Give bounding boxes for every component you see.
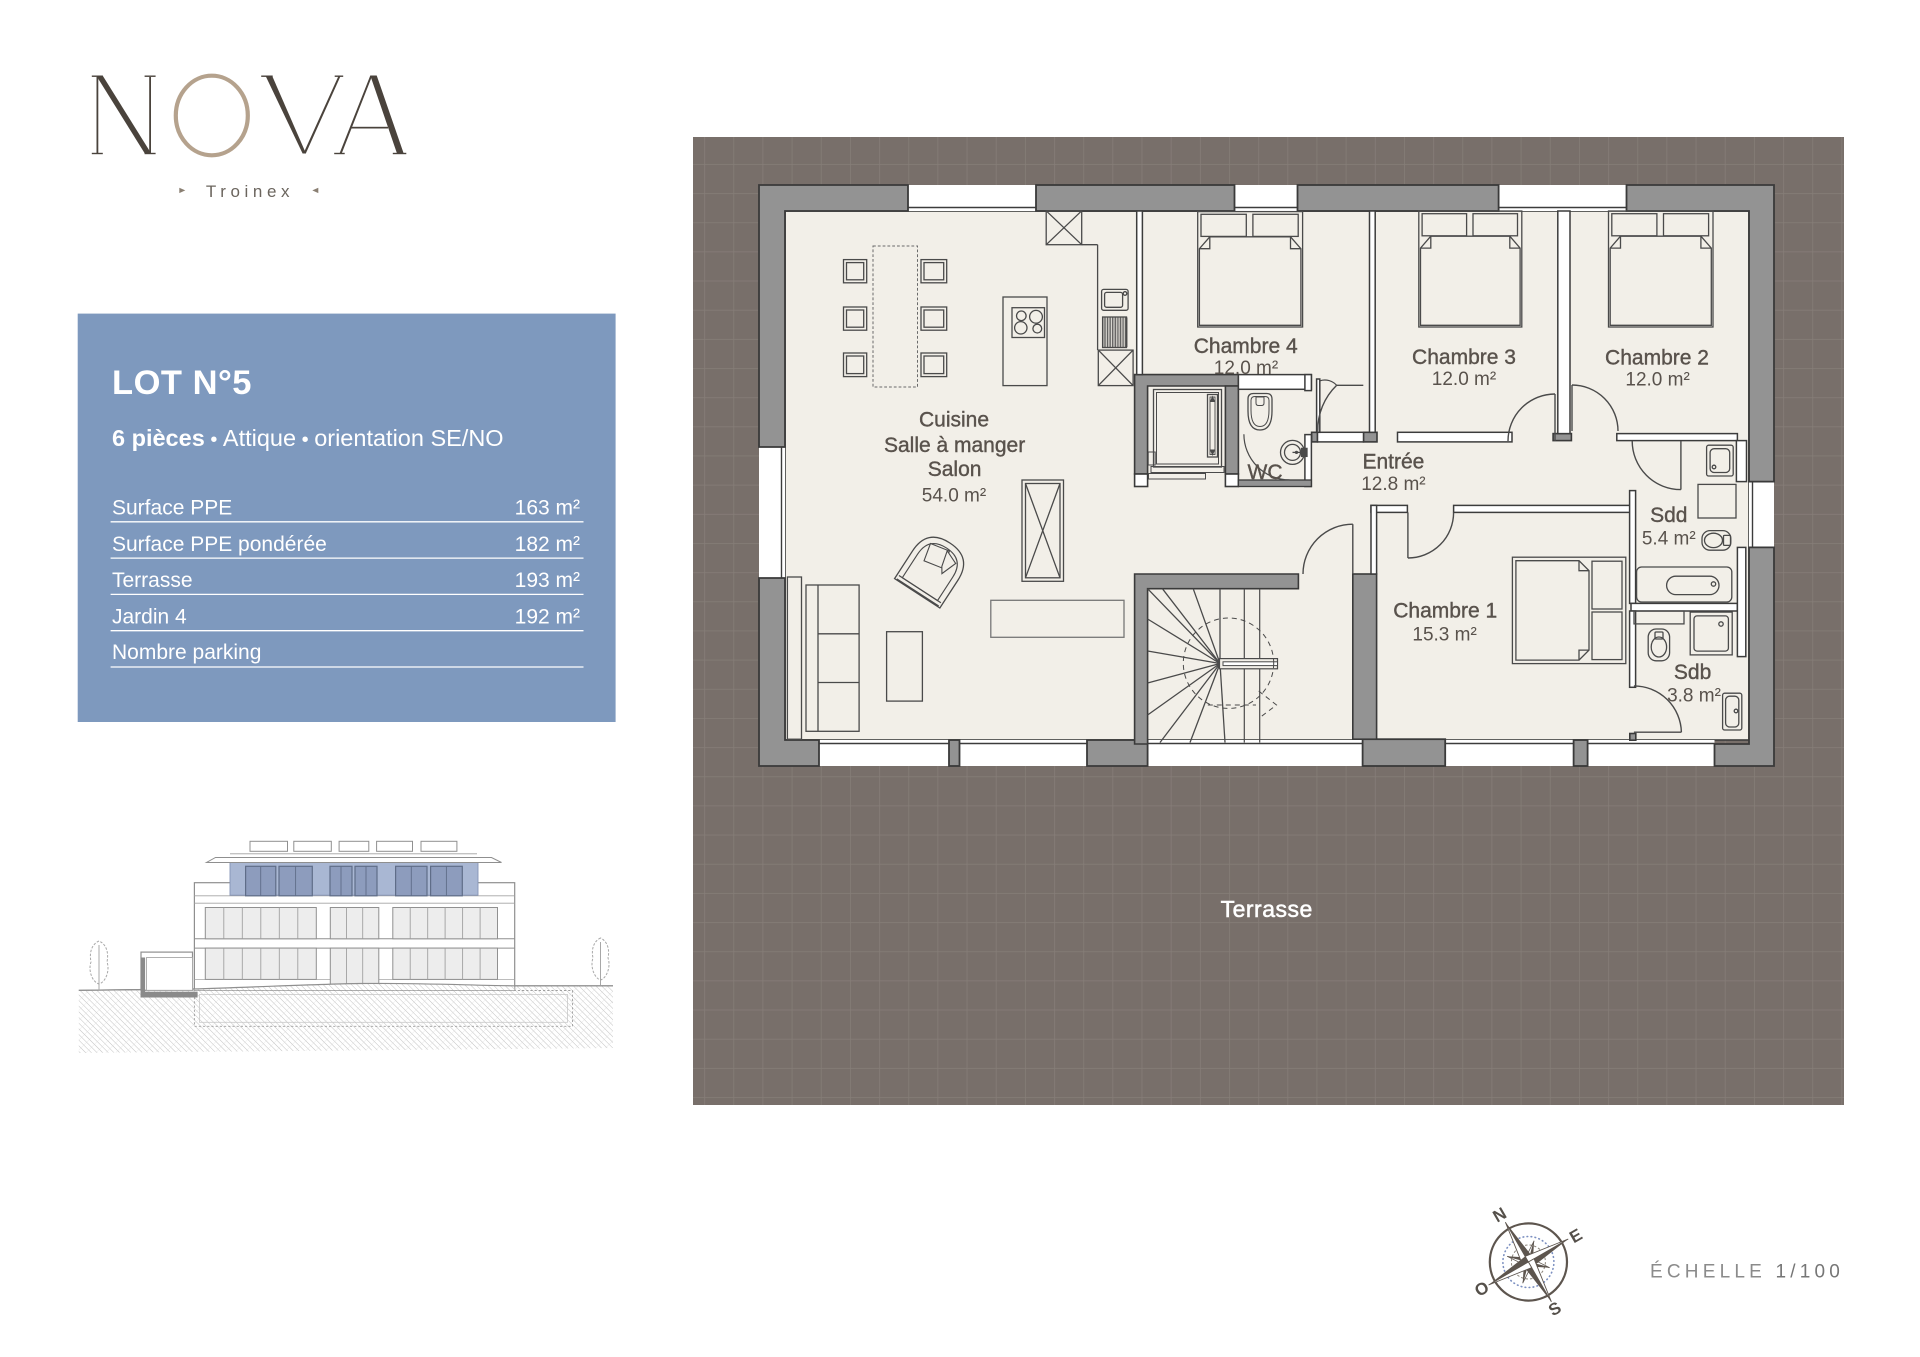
- svg-text:12.0 m²: 12.0 m²: [1214, 358, 1278, 379]
- svg-text:Chambre 2: Chambre 2: [1605, 346, 1709, 369]
- svg-text:3.8 m²: 3.8 m²: [1667, 685, 1721, 706]
- svg-text:Terrasse: Terrasse: [1221, 896, 1313, 922]
- svg-text:Cuisine: Cuisine: [919, 409, 989, 432]
- svg-text:5.4 m²: 5.4 m²: [1642, 529, 1696, 550]
- svg-text:193 m²: 193 m²: [515, 569, 580, 592]
- svg-text:Salon: Salon: [928, 458, 982, 481]
- svg-text:Entrée: Entrée: [1362, 450, 1424, 473]
- svg-text:Nombre parking: Nombre parking: [112, 641, 261, 664]
- svg-text:WC: WC: [1248, 461, 1283, 484]
- svg-text:Terrasse: Terrasse: [112, 569, 193, 592]
- svg-text:Chambre 3: Chambre 3: [1412, 346, 1516, 369]
- svg-text:12.0 m²: 12.0 m²: [1432, 369, 1496, 390]
- svg-text:Surface PPE: Surface PPE: [112, 497, 232, 520]
- svg-text:182 m²: 182 m²: [515, 533, 580, 556]
- svg-text:12.8 m²: 12.8 m²: [1361, 474, 1425, 495]
- svg-text:Sdd: Sdd: [1650, 504, 1687, 527]
- svg-text:15.3 m²: 15.3 m²: [1412, 624, 1476, 645]
- svg-text:Salle à manger: Salle à manger: [884, 434, 1025, 457]
- svg-text:Troinex: Troinex: [206, 182, 294, 201]
- svg-text:S: S: [1545, 1298, 1564, 1320]
- svg-text:E: E: [1566, 1225, 1585, 1247]
- svg-text:ÉCHELLE 1/100: ÉCHELLE 1/100: [1650, 1262, 1844, 1283]
- svg-text:Jardin 4: Jardin 4: [112, 606, 187, 629]
- svg-text:Surface PPE pondérée: Surface PPE pondérée: [112, 533, 327, 556]
- svg-text:163 m²: 163 m²: [515, 497, 580, 520]
- svg-text:Sdb: Sdb: [1674, 661, 1711, 684]
- svg-text:Chambre 1: Chambre 1: [1393, 599, 1497, 622]
- svg-text:LOT N°5: LOT N°5: [112, 364, 252, 402]
- svg-text:12.0 m²: 12.0 m²: [1625, 369, 1689, 390]
- svg-text:192 m²: 192 m²: [515, 606, 580, 629]
- svg-text:O: O: [1471, 1277, 1492, 1300]
- svg-text:6 pièces • Attique • orientati: 6 pièces • Attique • orientation SE/NO: [112, 425, 504, 451]
- svg-text:Chambre 4: Chambre 4: [1194, 335, 1298, 358]
- svg-text:54.0 m²: 54.0 m²: [922, 486, 986, 507]
- svg-text:N: N: [1490, 1204, 1510, 1227]
